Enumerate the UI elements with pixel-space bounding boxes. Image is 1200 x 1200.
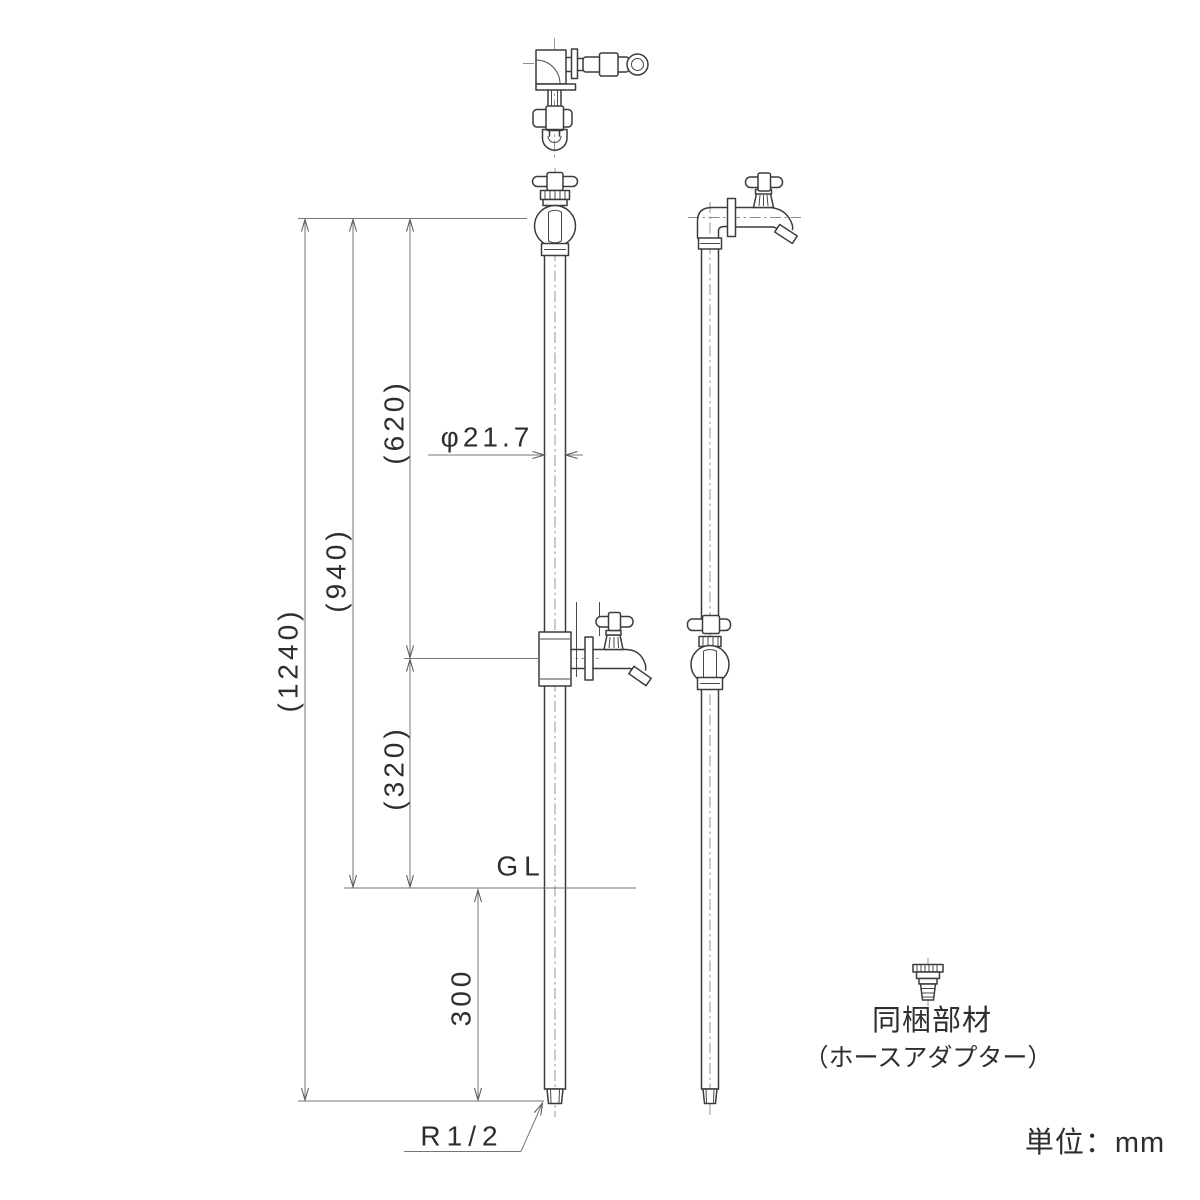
thread-size-label: R1/2 bbox=[420, 1121, 503, 1152]
handle-boss bbox=[600, 53, 619, 76]
hose-adapter-icon bbox=[913, 958, 943, 1006]
adapter-barb bbox=[921, 984, 936, 1000]
escutcheon-edge bbox=[536, 84, 576, 90]
flange bbox=[585, 637, 593, 680]
unit-note: 単位：mm bbox=[1025, 1126, 1165, 1159]
dimension-label-total-height: (1240) bbox=[273, 608, 304, 713]
handle-knob bbox=[627, 54, 648, 75]
dimension-below-gl: 300 bbox=[446, 889, 482, 1101]
top-faucet-front bbox=[533, 173, 578, 256]
thread-tip-right bbox=[702, 1089, 719, 1104]
technical-drawing: (1240) (940) (620) (320) 300 bbox=[0, 0, 1200, 1200]
elbow-body bbox=[536, 50, 566, 84]
dimension-branch-to-gl: (320) bbox=[379, 659, 414, 889]
flange bbox=[728, 199, 736, 237]
dimension-label-top-to-branch: (620) bbox=[379, 379, 410, 464]
dimension-label-below-gl: 300 bbox=[446, 968, 477, 1027]
adapter-body bbox=[917, 972, 940, 979]
top-faucet-side bbox=[698, 173, 798, 249]
front-view-post bbox=[533, 173, 652, 1104]
side-view-post bbox=[688, 173, 798, 1104]
dimension-total-height: (1240) bbox=[273, 219, 309, 1102]
ground-level-label: GL bbox=[496, 851, 545, 882]
elbow-inner bbox=[719, 227, 728, 239]
dimension-lines: (1240) (940) (620) (320) 300 bbox=[273, 219, 637, 1152]
spout-outlet bbox=[629, 666, 651, 685]
handle-boss bbox=[703, 616, 720, 634]
elbow-outer bbox=[698, 208, 728, 239]
dimension-top-to-gl: (940) bbox=[321, 219, 357, 889]
included-parts-title: 同梱部材 bbox=[872, 1004, 992, 1037]
included-parts: 同梱部材 （ホースアダプター） bbox=[804, 958, 1053, 1072]
dimension-label-top-to-gl: (940) bbox=[321, 527, 352, 612]
plan-view-faucet bbox=[533, 49, 648, 150]
faucet-body bbox=[535, 206, 576, 247]
tee-fitting bbox=[539, 632, 571, 686]
included-parts-name: （ホースアダプター） bbox=[804, 1044, 1053, 1072]
handle-boss bbox=[609, 613, 621, 631]
branch-faucet-side bbox=[539, 602, 651, 686]
branch-faucet-front bbox=[688, 616, 731, 690]
dimension-top-to-branch: (620) bbox=[379, 219, 414, 659]
thread-tip-left bbox=[545, 1089, 566, 1104]
flange-edge bbox=[572, 49, 578, 79]
thread-size-callout: R1/2 bbox=[404, 1103, 543, 1152]
dimension-label-pipe-diameter: φ21.7 bbox=[441, 422, 534, 453]
handle-boss bbox=[547, 173, 563, 191]
handle-boss bbox=[758, 173, 771, 191]
dimension-pipe-diameter: φ21.7 bbox=[428, 422, 583, 459]
dimension-label-branch-to-gl: (320) bbox=[379, 725, 410, 810]
spout-outlet bbox=[775, 225, 798, 244]
